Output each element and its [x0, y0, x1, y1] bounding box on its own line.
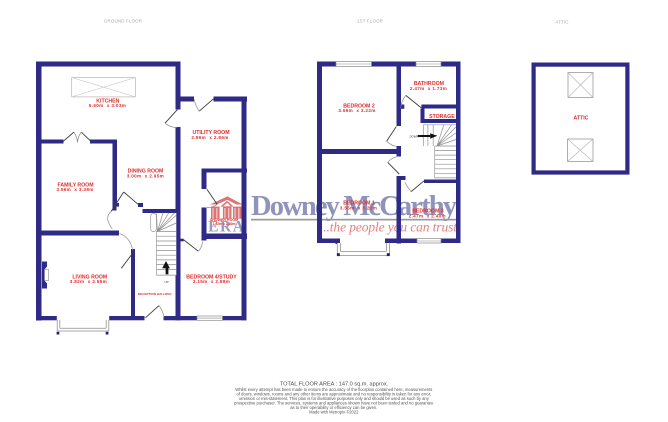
svg-text:ATTIC: ATTIC — [574, 115, 589, 121]
svg-text:DOWN: DOWN — [410, 134, 419, 138]
svg-text:3.56m x 3.22m: 3.56m x 3.22m — [338, 108, 375, 113]
svg-text:UP: UP — [164, 280, 168, 284]
svg-text:ATTIC: ATTIC — [555, 20, 568, 25]
svg-text:...the people you can trust: ...the people you can trust — [320, 220, 458, 235]
svg-text:GROUND FLOOR: GROUND FLOOR — [104, 19, 142, 24]
svg-text:STORAGE: STORAGE — [429, 114, 455, 120]
svg-text:2.47m x 2.40m: 2.47m x 2.40m — [409, 214, 446, 219]
svg-text:3.15m x 2.88m: 3.15m x 2.88m — [193, 279, 230, 284]
svg-text:3.82m x 3.55m: 3.82m x 3.55m — [70, 279, 107, 284]
svg-text:3.55m x 3.22m: 3.55m x 3.22m — [340, 205, 377, 210]
svg-text:3.56m x 3.38m: 3.56m x 3.38m — [56, 187, 93, 192]
svg-text:2.86m x 2.86m: 2.86m x 2.86m — [191, 135, 228, 140]
svg-text:1.92m x 1.40m: 1.92m x 1.40m — [213, 222, 236, 226]
svg-text:1ST FLOOR: 1ST FLOOR — [357, 19, 383, 24]
svg-text:RECEPTION HALLWAY: RECEPTION HALLWAY — [138, 292, 173, 296]
svg-text:2.47m x 1.73m: 2.47m x 1.73m — [410, 86, 447, 91]
svg-text:Made with Metropix ©2022: Made with Metropix ©2022 — [309, 410, 359, 415]
svg-text:3.00m x 2.95m: 3.00m x 2.95m — [127, 173, 164, 178]
svg-text:5.60m x 3.03m: 5.60m x 3.03m — [89, 103, 126, 108]
